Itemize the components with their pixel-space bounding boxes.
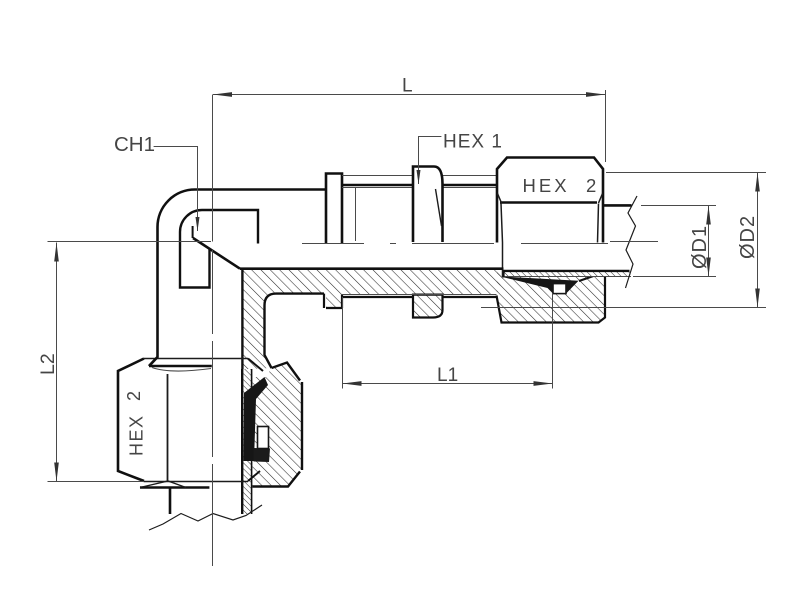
- svg-text:HEX: HEX: [127, 414, 147, 456]
- svg-text:CH1: CH1: [114, 133, 155, 156]
- svg-text:L: L: [402, 76, 413, 97]
- svg-text:ØD1: ØD1: [689, 225, 711, 269]
- svg-text:L1: L1: [437, 365, 458, 386]
- svg-text:2: 2: [586, 175, 596, 196]
- svg-text:HEX 1: HEX 1: [443, 132, 503, 153]
- svg-text:L2: L2: [37, 353, 59, 375]
- svg-text:ØD2: ØD2: [737, 215, 759, 259]
- svg-text:2: 2: [124, 391, 144, 401]
- svg-text:HEX: HEX: [523, 175, 570, 196]
